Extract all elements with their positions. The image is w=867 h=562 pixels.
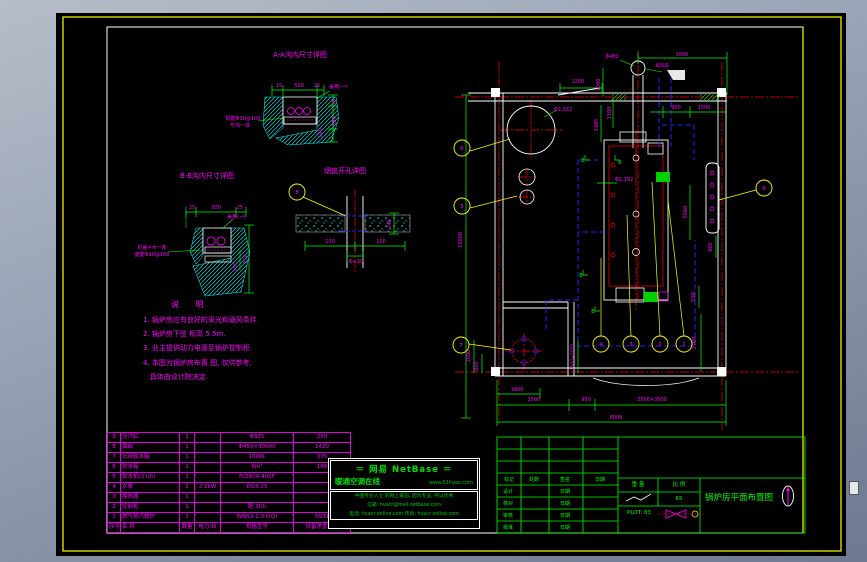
note-line: 具体由设计院决定. [143,370,257,384]
balloon-callout: 4 [593,336,609,352]
bom-header-row: 序号名 称数量电力/台规格型号设备净重(kg) [108,523,351,533]
cad-text-label: B [579,273,583,279]
notes-block: 说 明 1. 锅炉房应有良好的采光和通风条件2. 锅炉房下弦 标高 5.5m.3… [143,299,257,384]
cad-text-label: 20 [332,99,338,105]
cad-text-label: 3500×3500 [637,397,667,403]
bom-cell [195,513,221,523]
bom-cell: WNS3-1.0-Y(Q) [221,513,294,523]
bom-cell: 250 [294,433,351,443]
cad-text-label: B [591,309,595,315]
bom-row: 6软水箱18m³188 [108,463,351,473]
bom-cell: 1 [180,493,195,503]
bom-cell: DG3-25 [221,483,294,493]
bom-cell: 配 3t/h [221,503,294,513]
cad-text-label: 3000 [676,52,689,58]
cad-text-label: 25 [237,205,243,211]
bom-cell: 数量 [180,523,195,533]
note-line: 1. 锅炉房应有良好的采光和通风条件 [143,313,257,327]
note-line: 3. 业主提供动力电源至锅炉控制柜. [143,341,257,355]
bom-cell: 7 [108,453,121,463]
cad-text-label: 800 [474,361,480,371]
cad-text-label: 1000 [511,387,524,393]
cad-text-label: 1100 [607,107,613,120]
cad-text-label: 封盖=木一条 [137,244,166,251]
cad-text-label: 2700 [692,337,698,350]
watermark-box: ＝ 网易 NetBase ＝ 暖通空调在线 www.51hvac.com 中国专… [328,458,480,529]
cad-text-label: 签名 [560,476,570,483]
cad-text-label: 100 [325,239,335,245]
bom-cell: 2 [180,483,195,493]
bom-cell: 1 [108,513,121,523]
bom-cell: 2 [108,503,121,513]
scrollbar-thumb[interactable] [849,481,859,495]
bom-row: 5软水机(3 t/h)1FL5800-400F [108,473,351,483]
cad-text-label: Φ2,032 [554,107,572,113]
cad-text-label: 900 [581,397,591,403]
cad-text-label: B-B沟内尺寸详图 [180,171,234,180]
cad-text-label: 日期 [595,477,605,483]
bom-cell: 软水机(3 t/h) [121,473,180,483]
bom-cell: 电力/台 [195,523,221,533]
balloon-callout: 2 [652,336,668,352]
balloon-callout: 9 [756,180,772,196]
bom-cell [221,493,294,503]
balloon-callout: 7 [453,337,469,353]
balloon-number: 5 [460,204,464,210]
bom-cell: 4 [108,483,121,493]
bom-cell: 1 [180,443,195,453]
bom-row: 9分汽缸1Φ325250 [108,433,351,443]
bom-cell [195,453,221,463]
cad-text-label: 25 [189,205,195,211]
cad-text-label: 1500 [698,105,711,111]
balloon-callout: 8 [289,184,305,200]
cad-text-label: 标记 [504,476,514,483]
cad-text-label: 1385 [594,119,600,132]
watermark-brand: ＝ 网易 NetBase ＝ [331,463,477,475]
bom-cell: 2.2kW [195,483,221,493]
app-window: A-A沟内尺寸详图1550025盖板(→)钢筋Φ10@100与沟一体205501… [0,0,867,562]
cad-text-label: 150 [233,262,239,272]
bom-cell: 控制柜 [121,503,180,513]
bom-cell: 分汽缸 [121,433,180,443]
cad-text-label: Φ+30 [349,259,364,265]
watermark-bottom: 中国专业人士 的网上家园, 因为专业, 所以优秀 信箱: hvacr@mail.… [330,491,478,520]
bom-cell [195,443,221,453]
cad-text-label: 比 例 [673,480,686,488]
cad-text-label: 重 量 [632,480,645,488]
balloon-number: 8 [295,190,299,196]
cad-text-label: 日期 [560,525,570,531]
cad-text-label: 设计 [503,488,513,495]
cad-text-label: 65 [676,496,683,502]
cad-text-label: 10000 [458,232,464,248]
cad-text-label: 盖板(→) [329,83,347,90]
cad-text-label: 2500 [466,350,472,363]
notes-title: 说 明 [171,299,257,310]
bom-cell: 1 [180,503,195,513]
bom-cell: 序号 [108,523,121,533]
cad-text-label: 排风扇 [655,62,669,69]
cad-text-label: 550 [332,116,338,126]
bom-cell: 6 [108,463,121,473]
cad-text-label: 烟囱开孔详图 [324,166,366,175]
bom-cell [195,503,221,513]
title-block [497,437,805,533]
cad-text-label: 500 [294,83,304,89]
watermark-top: ＝ 网易 NetBase ＝ 暖通空调在线 www.51hvac.com [330,460,478,490]
projection-symbol [783,486,794,506]
bom-cell: 1 [180,473,195,483]
balloon-callout: 3 [623,336,639,352]
bom-row: 4水泵22.2kWDG3-25 [108,483,351,493]
cad-text-label: 面筋Φ10@100 [135,251,170,258]
bom-cell: 规格型号 [221,523,294,533]
balloon-number: 4 [599,342,603,348]
bom-cell: Φ325 [221,433,294,443]
note-line: 4. 本图为锅炉房布置 图, 仅供参考, [143,356,257,370]
cad-text-label: B [618,160,622,166]
balloon-number: 1 [682,342,686,348]
bom-cell: 烟囱 [121,443,180,453]
bom-row: 2控制柜1配 3t/h [108,503,351,513]
bom-cell: 日用软水箱 [121,453,180,463]
cad-text-label: 15 [276,83,282,89]
bom-cell: Φ450×30000 [221,443,294,453]
cad-text-label: 钢筋Φ10@100 [226,115,261,122]
cad-text-label: A-A沟内尺寸详图 [273,50,327,59]
bom-row: 3换热器1 [108,493,351,503]
balloon-number: 6 [460,146,464,152]
cad-text-label: 处数 [529,476,539,483]
bom-cell: 1 [180,513,195,523]
cad-text-label: 8000 [610,415,623,421]
bom-cell [195,493,221,503]
bom-cell: 9 [108,433,121,443]
cad-text-label: 1000 [596,79,602,92]
watermark-url: www.51hvac.com [429,480,473,486]
floor-plan [455,50,800,430]
cad-text-label: PLOT: 83 [627,510,651,516]
cad-text-label: 240 [387,219,393,229]
cad-text-label: 25 [314,83,320,89]
bom-cell: 换热器 [121,493,180,503]
balloon-callout: 6 [454,140,470,156]
detail-b-trench-section [168,207,254,296]
cad-text-label: Φ480 [605,54,618,60]
bom-row: 7日用软水箱11000L335 [108,453,351,463]
watermark-phone: 电话: hvacr-online.com 传真: hvacr-online.co… [331,510,477,519]
cad-text-label: 800 [708,242,714,252]
bom-cell: 3 [108,493,121,503]
watermark-mail: 信箱: hvacr@mail.netbase.com [331,501,477,510]
bom-cell: FL5800-400F [221,473,294,483]
watermark-site-name: 暖通空调在线 [335,476,380,487]
bom-row: 1燃气蒸汽锅炉1WNS3-1.0-Y(Q)5931 [108,513,351,523]
balloon-number: 7 [459,343,463,349]
balloon-number: 9 [762,186,766,192]
bom-cell: 1000L [221,453,294,463]
bom-cell: 软水箱 [121,463,180,473]
bom-cell [195,473,221,483]
cad-text-label: 500 [691,292,697,302]
cad-text-label: Φ2,192 [615,177,633,183]
bom-cell: 1420 [294,443,351,453]
cad-text-label: 日期 [560,501,570,507]
cad-text-label: 900 [671,105,681,111]
balloon-callout: 1 [676,336,692,352]
bom-cell: 名 称 [121,523,180,533]
cad-text-label: 日期 [560,489,570,495]
cad-text-label: 100 [318,128,324,138]
cad-text-label: 审核 [503,512,513,519]
bom-cell: 水泵 [121,483,180,493]
cad-text-label: 与沟一体 [230,122,250,129]
note-line: 2. 锅炉房下弦 标高 5.5m. [143,327,257,341]
cad-text-label: 校对 [503,500,513,507]
detail-a-trench-section [258,85,339,145]
bom-cell [195,433,221,443]
bom-cell: 1 [180,433,195,443]
bom-cell: 1 [180,463,195,473]
balloon-number: 3 [629,342,633,348]
balloon-number: 2 [658,342,662,348]
bom-cell: 8 [108,443,121,453]
bom-row: 8烟囱1Φ450×300001420 [108,443,351,453]
cad-text-label: 2500 [528,397,541,403]
bom-cell: 燃气蒸汽锅炉 [121,513,180,523]
cad-text-label: 批准 [503,524,513,531]
bom-cell: 1 [180,453,195,463]
cad-text-label: 550 [243,254,249,264]
cad-text-label: 盖板(→) [227,213,245,220]
cad-text-label: 5060 [683,206,689,219]
cad-text-label: 日期 [560,513,570,519]
cad-text-label: 1200 [572,79,585,85]
bom-cell [195,463,221,473]
bom-cell: 5 [108,473,121,483]
bom-table: 9分汽缸1Φ3252508烟囱1Φ450×3000014207日用软水箱1100… [107,432,351,533]
bom-cell: 8m³ [221,463,294,473]
cad-text-label: 锅炉房平面布置图 [705,492,773,503]
cad-text-label: B [581,158,585,164]
watermark-tagline: 中国专业人士 的网上家园, 因为专业, 所以优秀 [331,492,477,501]
balloon-callout: 5 [454,198,470,214]
cad-text-label: 1500×2050 [570,344,576,371]
cad-text-label: 100 [376,239,386,245]
cad-text-label: 300 [211,205,221,211]
